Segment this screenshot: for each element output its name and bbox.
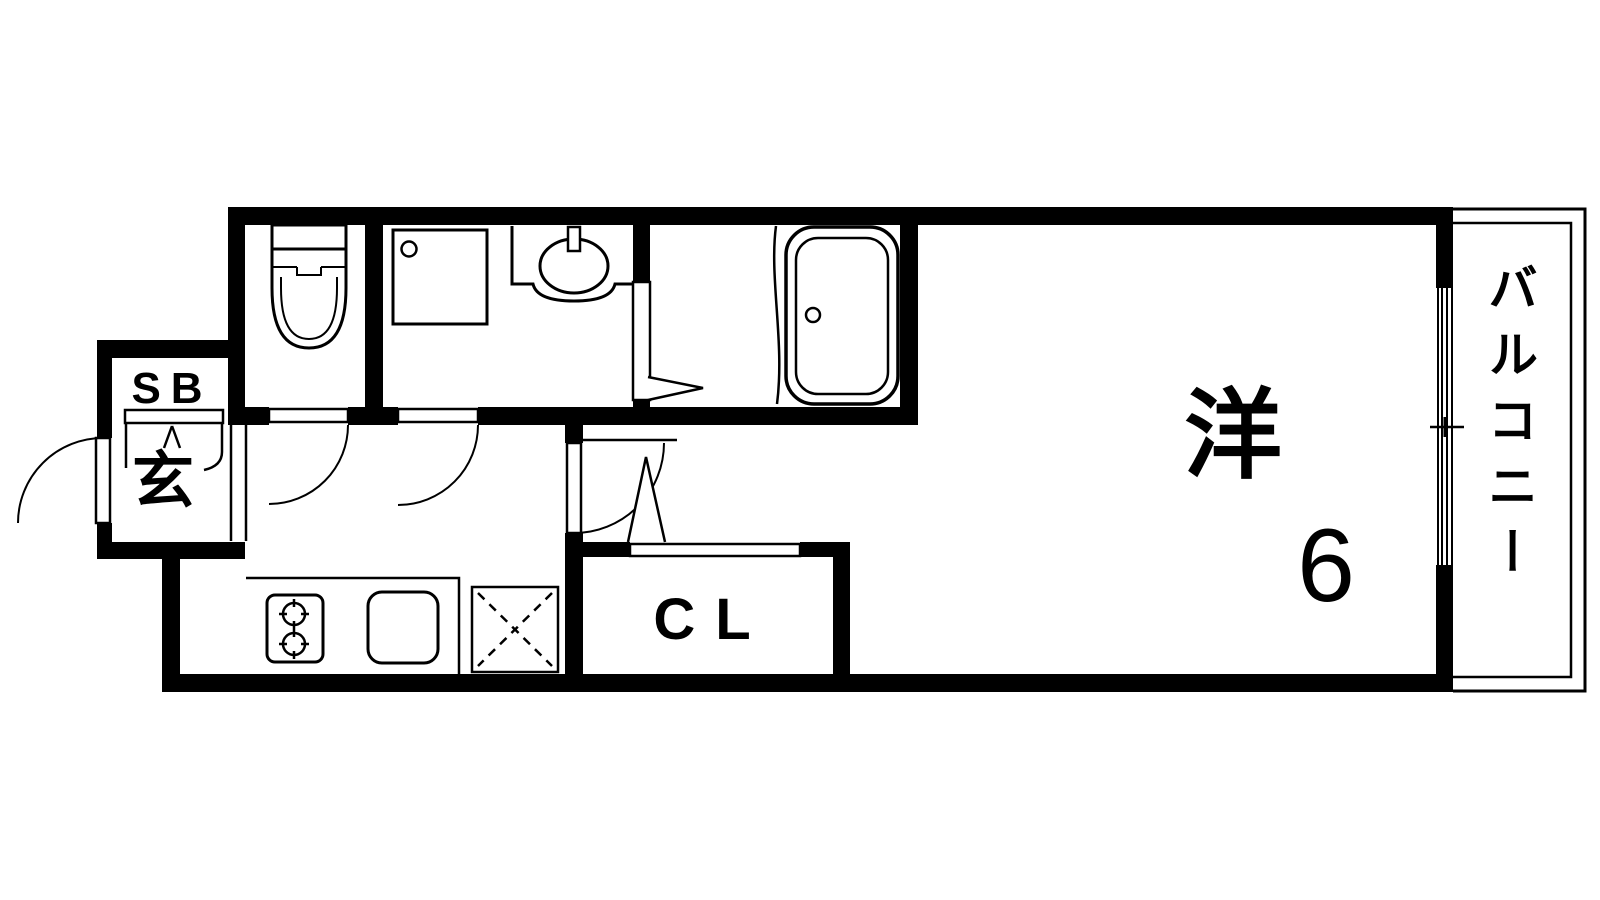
toilet-icon [272,225,346,348]
toilet-door-icon [269,409,348,504]
floor-plan: SB 玄 CL 洋 6 バルコニー [0,0,1600,900]
washroom-door-icon [398,409,478,505]
balcony-label: バルコニー [1484,262,1534,592]
stove-icon [267,595,323,662]
room-size-label: 6 [1297,514,1355,618]
refrigerator-space-icon [472,587,558,672]
entrance-label: 玄 [132,451,194,513]
entrance-door-icon [18,438,110,523]
bathtub-icon [774,226,898,404]
wash-basin-icon [512,226,633,301]
closet-folding-door-icon [628,457,800,556]
closet-label: CL [653,591,770,649]
shoe-box-label: SB [131,367,212,411]
western-room-label: 洋 [1184,386,1282,484]
bath-folding-door-icon [633,282,703,400]
window-icon [1430,288,1464,565]
kitchen-sink-icon [368,592,438,663]
floor-plan-drawing [0,0,1600,900]
washer-pan-icon [393,230,487,324]
